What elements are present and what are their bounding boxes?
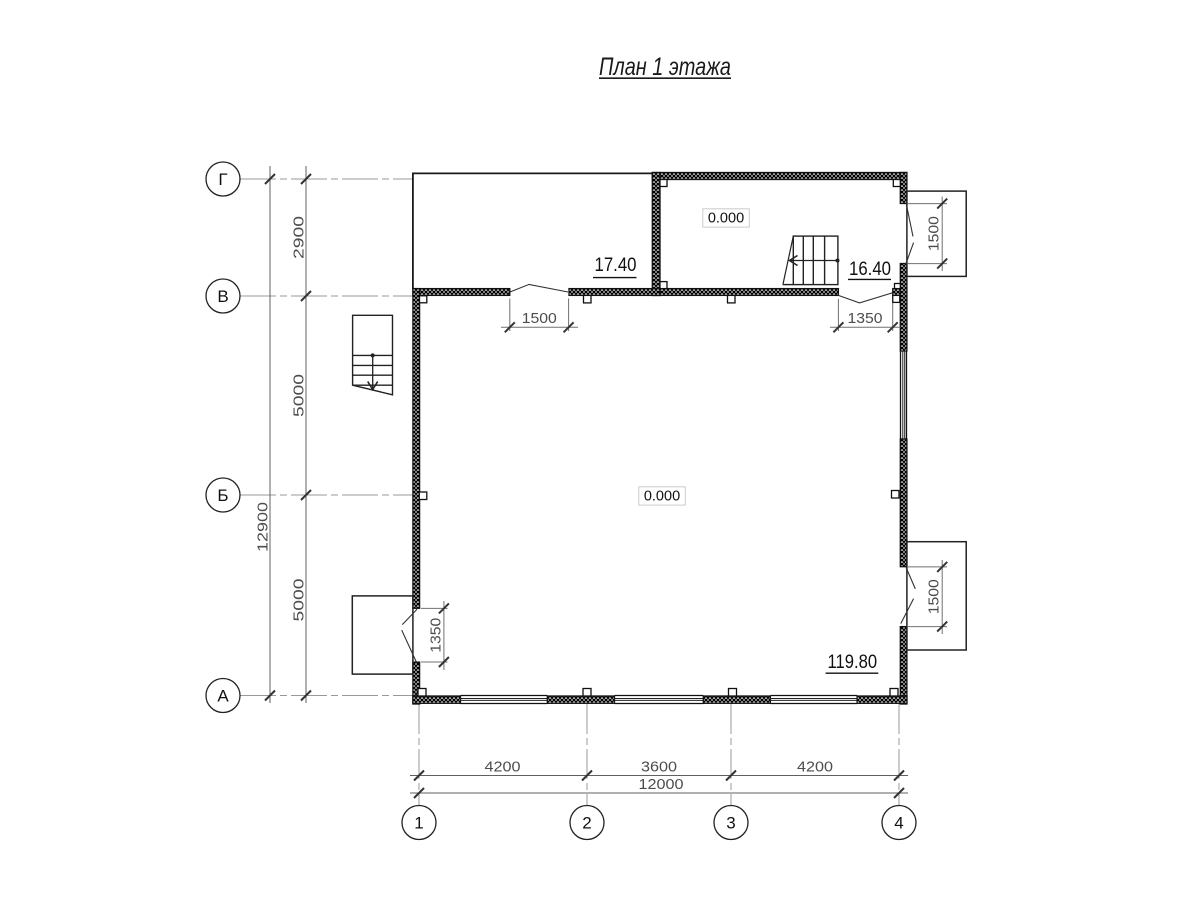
svg-text:4: 4 [894, 814, 903, 833]
svg-text:2: 2 [582, 814, 591, 833]
svg-text:119.80: 119.80 [828, 652, 878, 673]
svg-text:А: А [217, 687, 229, 706]
svg-text:3600: 3600 [641, 760, 677, 776]
svg-text:1350: 1350 [428, 618, 444, 653]
svg-text:0.000: 0.000 [708, 211, 744, 227]
svg-text:4200: 4200 [485, 760, 521, 776]
svg-text:2900: 2900 [292, 216, 308, 259]
svg-text:3: 3 [726, 814, 735, 833]
svg-text:1500: 1500 [522, 311, 557, 327]
svg-text:В: В [217, 287, 228, 306]
svg-text:0.000: 0.000 [644, 489, 680, 505]
svg-text:4200: 4200 [797, 760, 833, 776]
svg-text:1500: 1500 [927, 216, 943, 251]
svg-text:1500: 1500 [927, 579, 943, 614]
svg-text:16.40: 16.40 [849, 259, 891, 280]
svg-text:12000: 12000 [639, 777, 684, 793]
svg-text:12900: 12900 [256, 502, 272, 552]
svg-text:5000: 5000 [292, 374, 308, 417]
svg-text:1: 1 [414, 814, 423, 833]
svg-text:17.40: 17.40 [595, 255, 637, 276]
svg-text:Б: Б [217, 486, 228, 505]
svg-text:План 1 этажа: План 1 этажа [599, 53, 731, 81]
svg-text:1350: 1350 [848, 311, 883, 327]
svg-text:Г: Г [218, 170, 227, 189]
svg-text:5000: 5000 [292, 579, 308, 622]
